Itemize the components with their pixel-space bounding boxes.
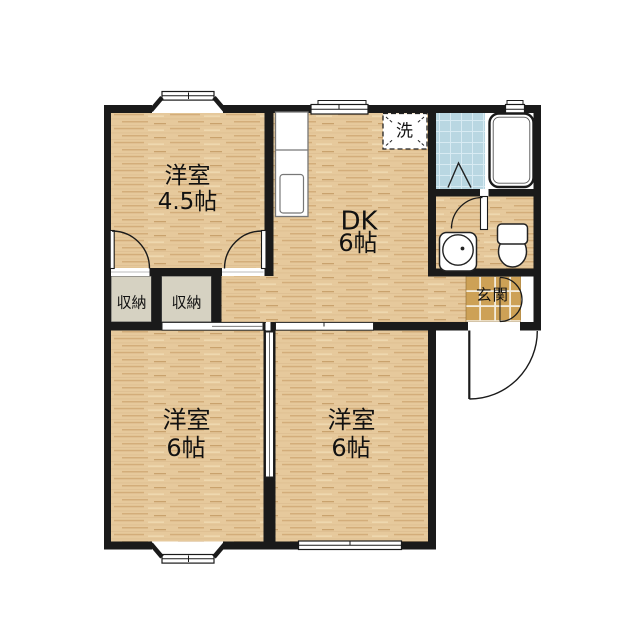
door-closet1-leaf (110, 231, 114, 269)
western1-label: 洋室 (165, 163, 211, 189)
closet2-label: 収納 (171, 294, 201, 312)
kitchen-counter-icon (276, 112, 309, 217)
opening-front-door (468, 322, 520, 331)
front-door (469, 331, 537, 400)
washbasin-icon (440, 233, 477, 272)
wall-closet-divider (152, 276, 162, 322)
opening-bathroom (480, 189, 489, 197)
bay-window-top (150, 92, 226, 114)
wall-mid-c (271, 322, 276, 331)
wall-closet2-right (212, 268, 222, 322)
wall-western3-right (428, 322, 436, 550)
wall-bath-bottom-a (428, 189, 480, 197)
toilet-icon (498, 224, 528, 267)
entrance-label: 玄関 (476, 286, 509, 304)
wall-mid-d (374, 322, 437, 331)
floorplan-svg: 洋室 4.5帖 DK 6帖 洋室 6帖 洋室 6帖 収納 収納 玄関 洗 (0, 0, 640, 640)
floorplan: 洋室 4.5帖 DK 6帖 洋室 6帖 洋室 6帖 収納 収納 玄関 洗 (0, 0, 640, 640)
door-western1-leaf (262, 231, 267, 269)
wall-mid-a (104, 322, 162, 331)
wall-western1-bottom (150, 268, 223, 276)
floor-entrance-side (521, 277, 534, 323)
window-western3 (299, 541, 402, 550)
bay-window-bottom (150, 542, 226, 564)
window-bathroom (506, 101, 525, 115)
front-door-swing (469, 331, 537, 399)
laundry-label: 洗 (396, 122, 413, 142)
closet1-label: 収納 (116, 294, 146, 312)
western3-label: 洋室 (328, 406, 376, 434)
kitchen-sink-icon (280, 175, 304, 214)
sliding-door-pocket (266, 323, 271, 330)
window-dk (311, 101, 368, 115)
wall-entrance-left (436, 322, 468, 331)
western2-label: 洋室 (163, 406, 211, 434)
bathtub-icon (490, 114, 534, 188)
western1-size: 4.5帖 (158, 189, 218, 215)
door-washroom-leaf (481, 197, 488, 230)
wall-entrance-right (520, 322, 541, 331)
western3-size: 6帖 (331, 434, 370, 462)
western2-size: 6帖 (166, 434, 205, 462)
bay-bottom-inner (153, 543, 223, 556)
dk-size: 6帖 (338, 229, 377, 257)
bay-top-inner (153, 100, 223, 114)
wall-bath-bottom-b (489, 189, 542, 197)
floor-bathroom-tile (436, 113, 485, 189)
